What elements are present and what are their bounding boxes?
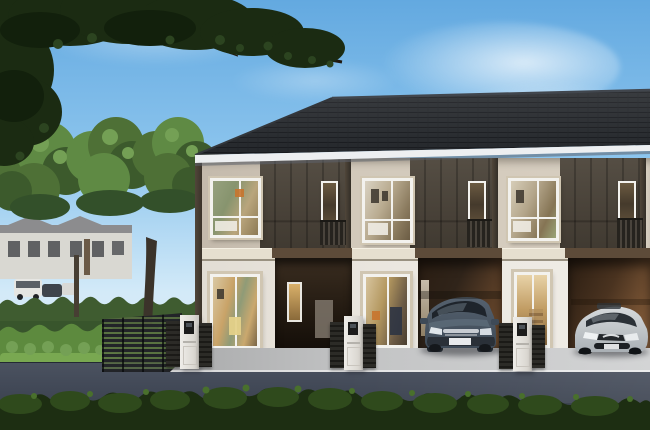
distant-houses xyxy=(0,216,132,279)
porch-side-window xyxy=(287,282,302,322)
overhanging-branch xyxy=(0,0,345,170)
intercom-panel xyxy=(517,323,527,336)
mail-slot xyxy=(516,343,529,345)
suv-headlight xyxy=(480,328,492,335)
yellow-chair xyxy=(229,317,241,335)
balcony-window-2 xyxy=(468,181,486,221)
suv-tire xyxy=(429,344,441,352)
wall-art xyxy=(217,289,224,299)
intercom-panel xyxy=(348,322,358,335)
gate-pillar-3 xyxy=(513,317,532,371)
gate-panel xyxy=(199,323,212,367)
suv-grille xyxy=(443,329,479,333)
suv-car xyxy=(419,291,501,353)
carport-header xyxy=(565,248,650,258)
facade-column xyxy=(492,158,498,250)
carport-shade xyxy=(419,291,501,299)
sedan-car xyxy=(571,299,650,356)
gate-panel xyxy=(330,322,344,368)
sedan-tire xyxy=(579,348,591,355)
gate-slats xyxy=(166,321,180,367)
shelf-box xyxy=(235,189,244,197)
wall-art xyxy=(382,191,388,201)
parked-cars xyxy=(14,279,77,300)
carport-header xyxy=(415,248,502,258)
townhouse-render xyxy=(0,0,650,430)
sofa xyxy=(368,223,388,235)
mail-slot xyxy=(347,342,360,344)
wall-art xyxy=(371,189,379,203)
sedan-tire xyxy=(629,348,641,355)
bed xyxy=(215,221,237,231)
upper-window-2 xyxy=(362,178,413,243)
porch-header xyxy=(272,248,352,258)
headboard xyxy=(513,221,531,232)
balcony-railing-3 xyxy=(617,218,643,248)
pillar-panel xyxy=(347,347,361,366)
carport-shade xyxy=(571,299,650,305)
gate-panel xyxy=(499,323,513,369)
upper-window-3 xyxy=(508,178,559,241)
pillar-panel xyxy=(183,346,197,365)
suv-tire xyxy=(479,344,491,352)
gate-panel xyxy=(363,324,376,368)
upper-window-1 xyxy=(210,178,261,238)
gate-panel xyxy=(166,321,180,367)
tree-trunk-small xyxy=(74,255,79,317)
balcony-window-1 xyxy=(321,181,338,222)
dark-cabinet xyxy=(390,307,402,335)
suv-mirror xyxy=(420,318,428,324)
foreground-hedge xyxy=(0,378,650,430)
intercom-panel xyxy=(184,321,194,334)
gate-pillar-2 xyxy=(344,316,363,370)
ground-sliding-window xyxy=(210,274,260,349)
balcony-railing-1 xyxy=(320,220,346,245)
suv-license-plate xyxy=(449,338,471,345)
balcony-window-3 xyxy=(618,181,636,220)
balcony-railing-2 xyxy=(467,219,492,247)
pillar-panel xyxy=(516,348,530,367)
suv-mirror xyxy=(491,319,499,325)
mail-slot xyxy=(183,341,196,343)
decor xyxy=(372,311,380,320)
gate-pillar-1 xyxy=(180,315,199,369)
sedan-license-plate xyxy=(604,344,619,349)
wall-art xyxy=(516,190,524,203)
gate-panel xyxy=(532,325,545,368)
suv-grille-lower xyxy=(445,334,477,336)
